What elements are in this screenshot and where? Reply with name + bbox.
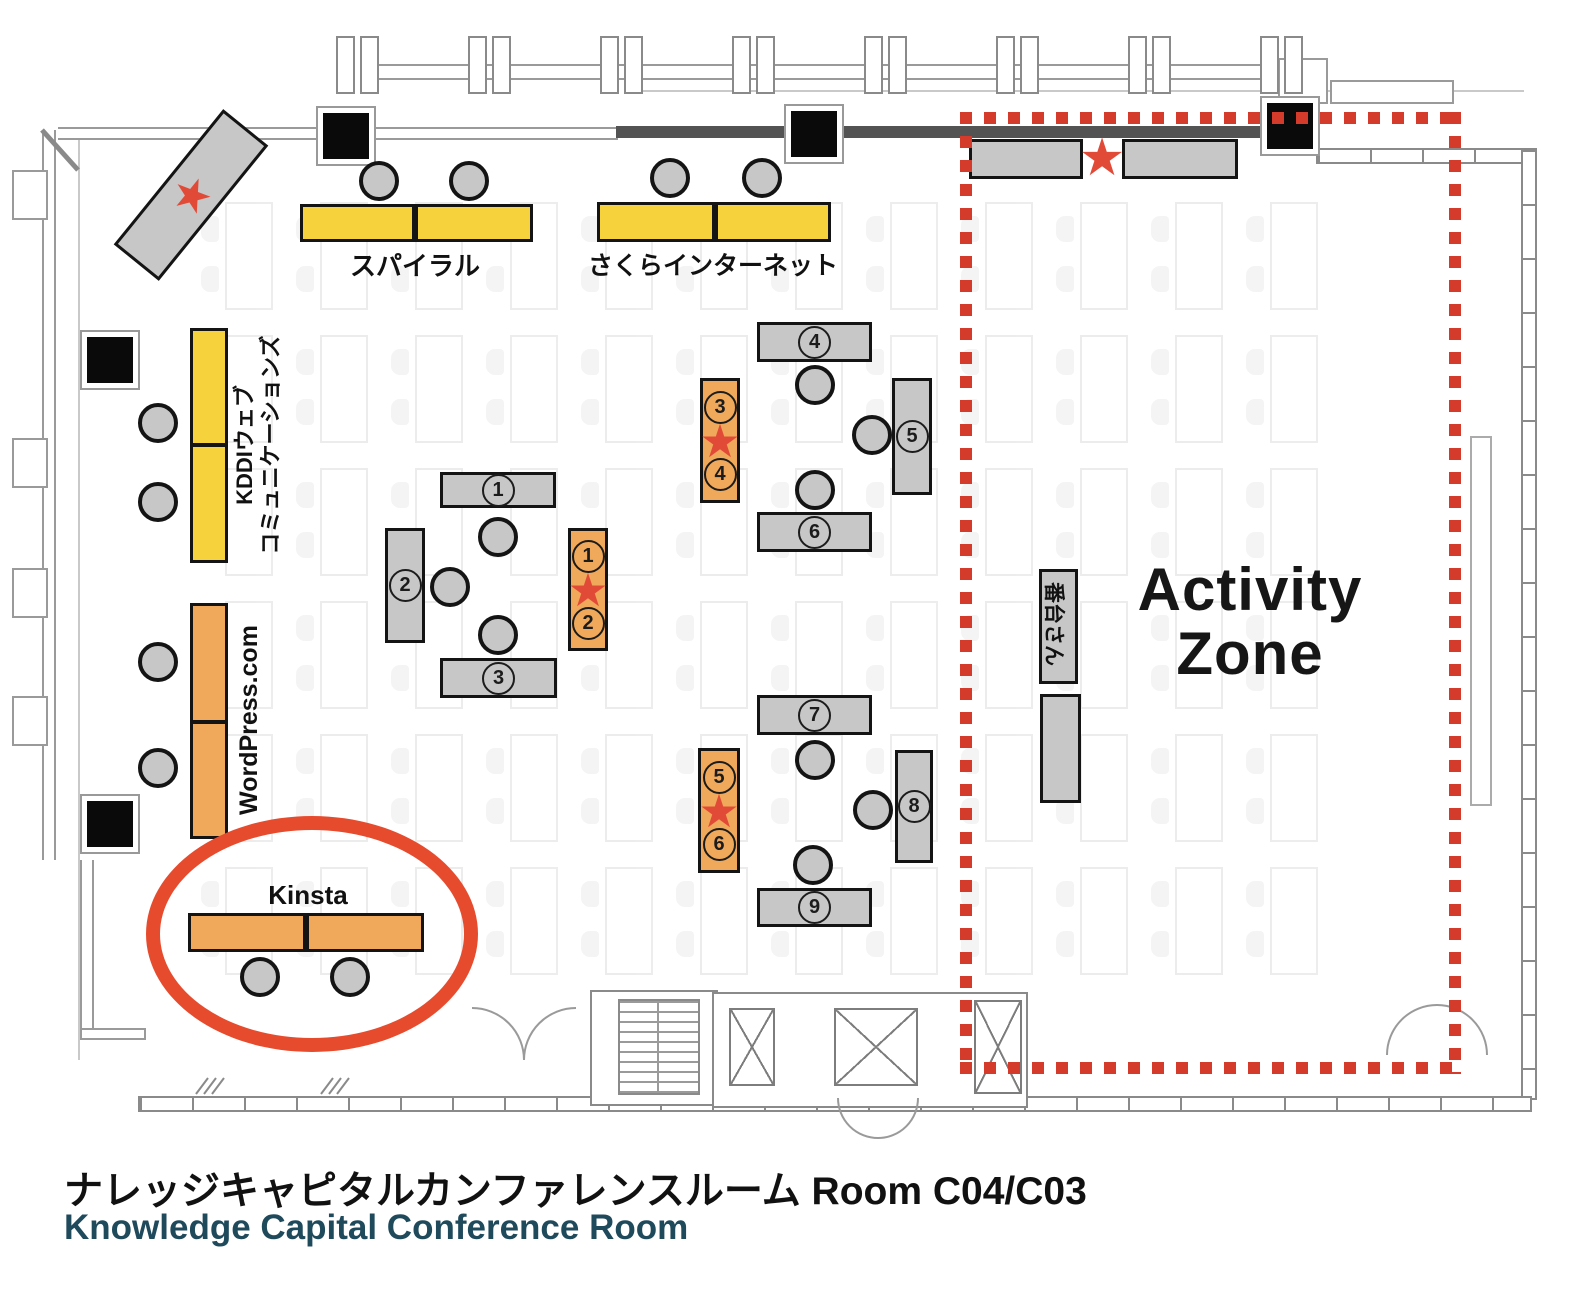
chair xyxy=(795,740,835,780)
chair xyxy=(795,470,835,510)
spiral-booth-table xyxy=(300,204,415,242)
kinsta-highlight-ellipse xyxy=(146,816,478,1052)
circled-number: 8 xyxy=(898,790,931,823)
table-8: 8 xyxy=(895,750,933,863)
column xyxy=(360,36,379,94)
staircase xyxy=(618,999,700,1095)
activity-zone-table xyxy=(1122,139,1238,179)
column xyxy=(756,36,775,94)
title-english: Knowledge Capital Conference Room xyxy=(64,1208,688,1248)
star-icon: ★ xyxy=(567,573,608,607)
seat-unit xyxy=(1240,863,1335,996)
seat-unit xyxy=(1240,730,1335,863)
seat-unit xyxy=(480,730,575,863)
circled-number: 7 xyxy=(798,699,831,732)
chair xyxy=(138,403,178,443)
kddi-label-line2: コミュニケーションズ xyxy=(258,325,284,565)
wall-column-pair xyxy=(996,36,1044,99)
circled-number: 3 xyxy=(482,662,515,695)
wordpress-booth-table xyxy=(190,721,228,839)
chair xyxy=(853,790,893,830)
activity-zone-border-left xyxy=(960,112,972,1074)
activity-zone-line2: Zone xyxy=(1095,622,1405,686)
window-tab xyxy=(12,696,48,746)
wall-column-pair xyxy=(336,36,384,99)
column xyxy=(1152,36,1171,94)
seat-unit xyxy=(385,331,480,464)
chair xyxy=(138,482,178,522)
table-5: 5 xyxy=(892,378,932,495)
chair xyxy=(430,567,470,607)
table-9: 9 xyxy=(757,888,872,927)
column xyxy=(492,36,511,94)
elevator-shaft xyxy=(974,1000,1022,1094)
column xyxy=(468,36,487,94)
elevator-shaft xyxy=(834,1008,918,1086)
window-tab xyxy=(12,170,48,220)
spiral-booth-table xyxy=(415,204,533,242)
elevator-shaft xyxy=(729,1008,775,1086)
pillar xyxy=(318,108,374,164)
column xyxy=(600,36,619,94)
seat-unit xyxy=(575,730,670,863)
star-table-a: 1 ★ 2 xyxy=(568,528,608,651)
activity-zone-title: Activity Zone xyxy=(1095,558,1405,686)
wall-column-pair xyxy=(732,36,780,99)
spiral-booth-label: スパイラル xyxy=(300,246,530,283)
activity-zone-border-top xyxy=(960,112,1461,124)
chair xyxy=(478,615,518,655)
seat-unit xyxy=(860,597,955,730)
table-6: 6 xyxy=(757,512,872,552)
sakura-booth-table xyxy=(715,202,831,242)
activity-zone-line1: Activity xyxy=(1095,558,1405,622)
seat-unit xyxy=(290,464,385,597)
kddi-booth-label: KDDIウェブ コミュニケーションズ xyxy=(232,325,284,565)
seat-unit xyxy=(1050,331,1145,464)
circled-number: 5 xyxy=(896,420,929,453)
circled-number: 6 xyxy=(798,516,831,549)
table-1: 1 xyxy=(440,472,556,508)
table-7: 7 xyxy=(757,695,872,735)
window-tab xyxy=(12,438,48,488)
kddi-booth-table xyxy=(190,444,228,563)
inner-wall-line xyxy=(78,140,80,1060)
wall-column-pair xyxy=(864,36,912,99)
wordpress-booth-table xyxy=(190,603,228,723)
wall-left-lower xyxy=(80,860,94,1032)
activity-zone-border-right xyxy=(1449,112,1461,1074)
chair xyxy=(138,642,178,682)
column xyxy=(888,36,907,94)
wall-left xyxy=(42,130,56,860)
seat-unit xyxy=(670,863,765,996)
chair xyxy=(138,748,178,788)
star-icon: ★ xyxy=(698,794,739,828)
pillar xyxy=(82,796,138,852)
circled-number: 9 xyxy=(798,891,831,924)
chair xyxy=(742,158,782,198)
chair xyxy=(795,365,835,405)
chair xyxy=(793,845,833,885)
wall-column-pair xyxy=(1260,36,1308,99)
seat-unit xyxy=(1145,198,1240,331)
circled-number: 2 xyxy=(389,569,422,602)
wall-column-pair xyxy=(1128,36,1176,99)
seat-unit xyxy=(1145,331,1240,464)
seat-unit xyxy=(1050,198,1145,331)
column xyxy=(1260,36,1279,94)
activity-zone-table xyxy=(969,139,1083,179)
star-table-c: 5 ★ 6 xyxy=(698,748,740,873)
sakura-booth-table xyxy=(597,202,715,242)
sakura-booth-label: さくらインターネット xyxy=(583,246,843,282)
activity-zone-border-bottom xyxy=(960,1062,1461,1074)
column xyxy=(1020,36,1039,94)
seat-unit xyxy=(1145,863,1240,996)
circled-number: 1 xyxy=(482,474,515,507)
column xyxy=(624,36,643,94)
table-2: 2 xyxy=(385,528,425,643)
column xyxy=(996,36,1015,94)
seat-unit xyxy=(575,331,670,464)
seat-unit xyxy=(860,863,955,996)
column xyxy=(1284,36,1303,94)
table-3: 3 xyxy=(440,658,557,698)
star-icon: ★ xyxy=(699,424,740,458)
column xyxy=(1128,36,1147,94)
kddi-booth-table xyxy=(190,328,228,446)
star-table-b: 3 ★ 4 xyxy=(700,378,740,503)
chair xyxy=(478,517,518,557)
kddi-label-line1: KDDIウェブ xyxy=(232,325,258,565)
seat-unit xyxy=(670,597,765,730)
seat-unit xyxy=(290,331,385,464)
pillar xyxy=(82,332,138,388)
seat-unit xyxy=(860,198,955,331)
pillar xyxy=(1262,98,1318,154)
seat-unit xyxy=(1050,863,1145,996)
wall-column-pair xyxy=(600,36,648,99)
wall-right-step xyxy=(1316,148,1528,164)
seat-unit xyxy=(1240,198,1335,331)
wall-right xyxy=(1521,148,1537,1100)
star-icon: ★ xyxy=(1076,134,1128,182)
wall-column-pair xyxy=(468,36,516,99)
chair xyxy=(650,158,690,198)
floor-plan: Activity Zone ★ スパイラル さくらインターネット KDDIウェブ… xyxy=(0,0,1582,1140)
seat-unit xyxy=(290,597,385,730)
table-4: 4 xyxy=(757,322,872,362)
vestibule-box xyxy=(1330,80,1454,104)
seat-unit xyxy=(480,331,575,464)
column xyxy=(732,36,751,94)
column xyxy=(336,36,355,94)
column xyxy=(864,36,883,94)
window-tab xyxy=(12,568,48,618)
bandai-table xyxy=(1040,694,1081,803)
bandai-label: 番台さん xyxy=(1046,574,1070,674)
seat-unit xyxy=(480,863,575,996)
chair xyxy=(359,161,399,201)
side-counter-strip xyxy=(1470,436,1492,806)
seat-unit xyxy=(1240,331,1335,464)
chair xyxy=(852,415,892,455)
star-icon: ★ xyxy=(165,168,217,221)
wordpress-booth-label: WordPress.com xyxy=(235,600,261,840)
pillar xyxy=(786,106,842,162)
seat-unit xyxy=(575,863,670,996)
wall-left-step xyxy=(80,1028,146,1040)
circled-number: 4 xyxy=(798,326,831,359)
seat-unit xyxy=(1145,730,1240,863)
chair xyxy=(449,161,489,201)
